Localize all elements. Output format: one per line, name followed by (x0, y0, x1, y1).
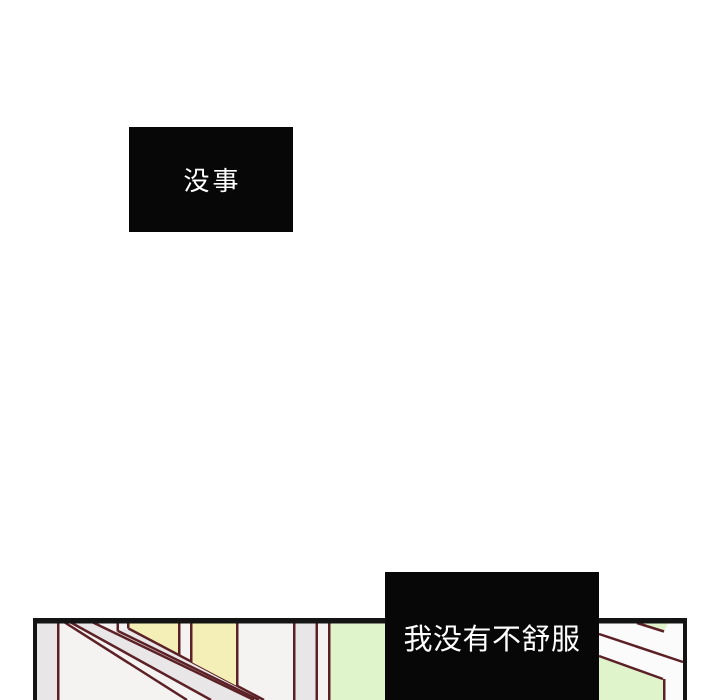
caption-text-bottom: 我没有不舒服 (403, 616, 580, 658)
window-frame-2-right (236, 622, 239, 686)
wall-gray-strip-right (296, 622, 316, 700)
caption-box-bottom: 我没有不舒服 (385, 572, 599, 700)
wall-frame-line (57, 622, 60, 700)
window-frame-2-left (190, 622, 193, 663)
wall-frame-line-2 (293, 622, 296, 700)
caption-text-top: 没事 (180, 161, 241, 198)
wall-frame-line-4 (328, 622, 331, 700)
wall-frame-line-3 (316, 622, 319, 700)
panel-border-left (33, 618, 37, 700)
caption-box-top: 没事 (129, 127, 293, 232)
window-frame-1-right (178, 622, 181, 655)
panel-border-right (683, 618, 687, 700)
green-wall-right-frame (663, 679, 666, 700)
wall-gray-strip-left (36, 622, 57, 700)
